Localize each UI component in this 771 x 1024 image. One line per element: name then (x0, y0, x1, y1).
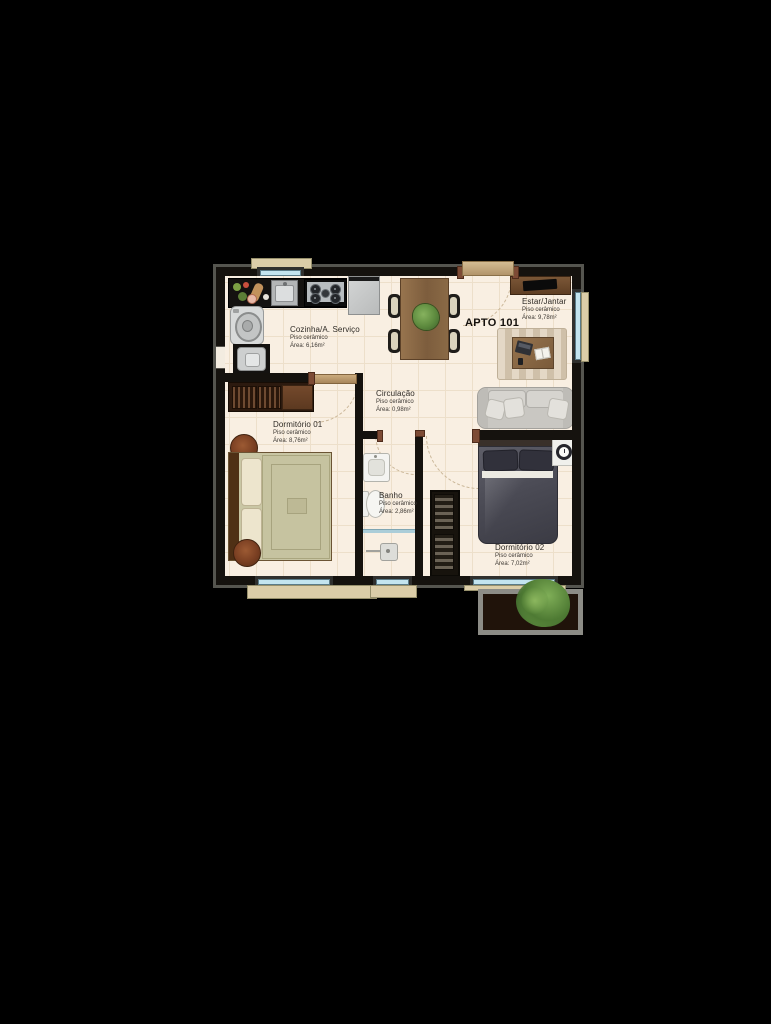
room-floor: Piso cerâmico (495, 553, 544, 561)
bed-dormitorio2 (478, 440, 556, 542)
laptop-icon (515, 340, 533, 356)
room-name: Cozinha/A. Serviço (290, 325, 360, 335)
shower-glass-partition (359, 529, 415, 533)
room-floor: Piso cerâmico (273, 430, 322, 438)
apartment-label: APTO 101 (465, 317, 519, 329)
food-item-icon (238, 292, 247, 301)
tv-rack (510, 276, 571, 295)
room-name: Circulação (376, 389, 415, 399)
phone-icon (518, 358, 523, 365)
throw-pillow-icon (546, 397, 569, 420)
cooktop (304, 279, 347, 307)
room-floor: Piso cerâmico (376, 399, 415, 407)
hanging-clothes-icon (232, 386, 257, 409)
bed-pillow-icon (519, 449, 555, 471)
shower-arm (366, 550, 380, 552)
room-area: Área: 0,98m² (376, 407, 415, 415)
wall-kitchen-bedroom1 (225, 373, 313, 382)
food-item-icon (243, 282, 249, 288)
floor-plan: APTO 101 Cozinha/A. Serviço Piso cerâmic… (216, 267, 581, 585)
television-icon (523, 279, 558, 291)
room-area: Área: 7,02m² (495, 561, 544, 569)
shower-head (380, 543, 398, 561)
room-label-banho: Banho Piso cerâmico Área: 2,86m² (379, 491, 417, 516)
bedroom1-window-sill (247, 585, 377, 599)
door-jamb (377, 430, 383, 442)
food-item-icon (247, 294, 257, 304)
service-window (216, 346, 225, 369)
blanket (262, 455, 330, 559)
room-name: Dormitório 01 (273, 420, 322, 430)
door-jamb (308, 372, 315, 385)
room-name: Banho (379, 491, 417, 501)
wall-living-bedroom2 (478, 430, 572, 440)
clock-icon (556, 444, 572, 460)
bedroom1-window (255, 576, 333, 585)
coffee-table (512, 337, 554, 369)
bedroom1-door-leaf (313, 374, 357, 384)
room-label-dormitorio2: Dormitório 02 Piso cerâmico Área: 7,02m² (495, 543, 544, 568)
round-rug (233, 539, 261, 567)
bed-pillow-icon (241, 458, 262, 506)
page-background: { "plan": { "apartment_label": "APTO 101… (0, 0, 771, 1024)
room-label-circulacao: Circulação Piso cerâmico Área: 0,98m² (376, 389, 415, 414)
food-item-icon (263, 294, 269, 300)
washing-machine (230, 306, 264, 345)
door-jamb (415, 430, 425, 437)
room-floor: Piso cerâmico (379, 501, 417, 509)
living-window (572, 289, 581, 363)
room-area: Área: 6,16m² (290, 343, 360, 351)
room-name: Estar/Jantar (522, 297, 566, 307)
kitchen-window (257, 267, 304, 276)
room-name: Dormitório 02 (495, 543, 544, 553)
plant-centerpiece-icon (413, 304, 439, 330)
hanging-clothes-icon (258, 386, 281, 409)
room-label-estar: Estar/Jantar Piso cerâmico Área: 9,78m² (522, 297, 566, 322)
shrub-icon (516, 579, 570, 627)
wall-bedroom1-circulation (355, 373, 363, 576)
wardrobe (228, 382, 314, 412)
room-area: Área: 9,78m² (522, 315, 566, 323)
sofa (477, 387, 574, 429)
room-floor: Piso cerâmico (290, 335, 360, 343)
room-area: Área: 2,86m² (379, 509, 417, 517)
living-window-sill (581, 292, 589, 362)
bathroom-window-sill (370, 585, 417, 598)
open-book-icon (534, 347, 551, 360)
room-floor: Piso cerâmico (522, 307, 566, 315)
kitchen-sink (271, 280, 298, 306)
wall-left (216, 267, 225, 585)
bathroom-sink (363, 453, 390, 482)
sheet-fold (482, 471, 553, 478)
room-area: Área: 8,76m² (273, 438, 322, 446)
food-item-icon (233, 283, 241, 291)
door-jamb (472, 429, 480, 443)
laundry-tank (233, 344, 270, 374)
room-label-dormitorio1: Dormitório 01 Piso cerâmico Área: 8,76m² (273, 420, 322, 445)
refrigerator (348, 276, 380, 315)
room-label-cozinha: Cozinha/A. Serviço Piso cerâmico Área: 6… (290, 325, 360, 350)
closet-dormitorio2 (430, 490, 460, 577)
bed-pillow-icon (483, 449, 519, 471)
bathroom-window (373, 576, 412, 585)
throw-pillow-icon (503, 397, 526, 420)
entry-door-leaf (462, 261, 514, 276)
